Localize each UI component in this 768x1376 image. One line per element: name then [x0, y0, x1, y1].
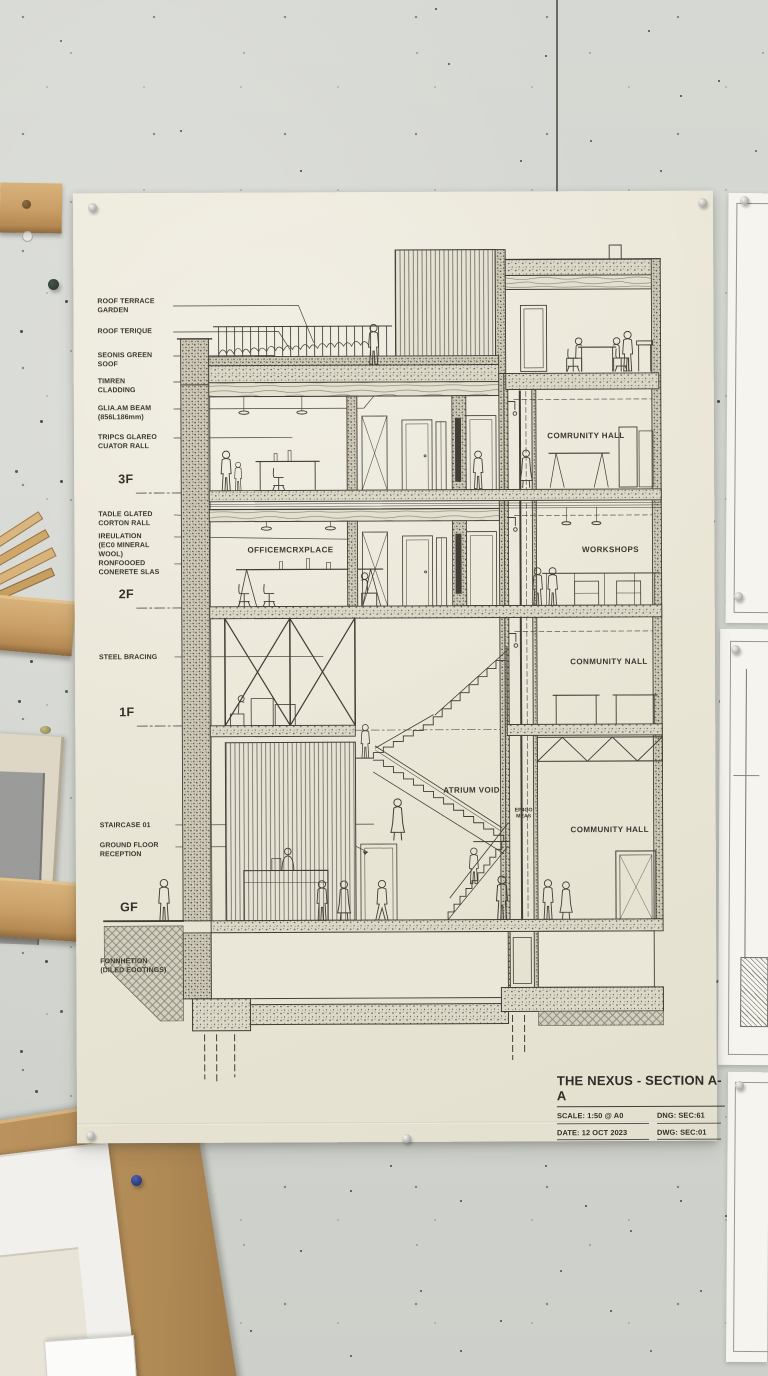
poster-pin-bottom-middle [402, 1134, 411, 1143]
annotation-reception: GROUND FLOOR RECEPTION [100, 841, 212, 860]
floor3-doors [362, 396, 496, 491]
pinned-sheet-mid-right [718, 629, 768, 1065]
annotation-roof-terrace-garden: ROOF TERRACE GARDEN [97, 297, 209, 316]
annotation-concrete-slab: RONFOOOED CONERETE SLAS [99, 559, 211, 578]
floor1-left-slab [210, 725, 355, 737]
annotation-staircase: STAIRCASE 01 [100, 821, 212, 831]
floor-label-gf: GF [120, 900, 138, 914]
blue-push-pin [131, 1175, 142, 1186]
poster-pin-top-left [88, 203, 97, 212]
room-label-community-hall-gf: COMMUNITY HALL [550, 825, 670, 835]
room-label-atrium-void: ATRIUM VOID [412, 785, 532, 795]
gf-right-hall [616, 851, 656, 919]
top-right-room [505, 305, 658, 390]
annotation-timber-cladding: TIMREN CLADDING [98, 377, 210, 396]
floor2-slab [209, 489, 661, 522]
room-label-workshops: WORKSHOPS [550, 545, 670, 555]
room-label-office: OFFICEMCRXPLACE [230, 545, 350, 555]
sheet-pin [734, 592, 743, 601]
pinned-sheet-bottom-right [726, 1072, 768, 1362]
architectural-section-poster: ROOF TERRACE GARDEN ROOF TERIQUE SEONIS … [73, 191, 717, 1144]
atrium-staircase [355, 647, 508, 921]
studio-wall-photo: ROOF TERRACE GARDEN ROOF TERIQUE SEONIS … [0, 0, 768, 1376]
annotation-foundation: FONNHETION (DILED EOOTINGS) [100, 957, 212, 976]
floor-label-2f: 2F [119, 587, 134, 601]
sheet-pin [731, 645, 740, 654]
wood-shelf-upper [0, 595, 76, 657]
white-frame-corner [44, 1335, 138, 1376]
floor1-right-hall [507, 631, 663, 762]
room-label-community-hall-top: COMRUNITY HALL [526, 431, 646, 441]
services-shaft [499, 373, 539, 989]
annotation-glulam-beam: GLIA.AM BEAM (856L186mm) [98, 404, 210, 423]
annotation-roof-terique: ROOF TERIQUE [98, 327, 210, 337]
pinned-sheet-top-right [725, 193, 768, 623]
wood-shelf-lower [0, 877, 82, 942]
annotation-curtain-wall-upper: TRIPCS GLAREO CUATOR RALL [98, 433, 210, 452]
floor2-doors [362, 521, 496, 607]
annotation-insulation: IREULATION (EC0 MINERAL WOOL) [98, 532, 210, 560]
annotation-curtain-wall-lower: TADLE GLATED CORTON RALL [98, 510, 210, 529]
poster-pin-bottom-left [86, 1131, 95, 1140]
yellow-push-pin [40, 726, 51, 734]
clear-push-pin [22, 231, 33, 242]
gf-reception [225, 742, 356, 921]
date-field: DATE: 12 OCT 2023 [557, 1127, 649, 1140]
sheet-pin [735, 1081, 744, 1090]
floor2-office [236, 521, 382, 607]
floor-label-3f: 3F [118, 472, 133, 486]
title-block: THE NEXUS - SECTION A-A SCALE: 1:50 @ A0… [557, 1073, 725, 1141]
floor1-slab [210, 605, 662, 619]
poster-pin-top-right [698, 198, 707, 207]
steel-bracing [225, 618, 355, 726]
detail-hatch-box [740, 957, 768, 1027]
dwg-field: DWG: SEC:01 [657, 1127, 721, 1140]
ground-foundation [104, 919, 664, 1083]
screw-head [22, 200, 31, 209]
hanging-wire [556, 0, 558, 194]
wood-wall-bracket [0, 182, 62, 233]
black-push-pin [206, 1216, 216, 1226]
annotation-green-roof: SEONIS GREEN SOOF [98, 351, 210, 370]
sheet-pin [740, 196, 749, 205]
floor-label-1f: 1F [119, 705, 134, 719]
room-label-community-hall-1f: CONMUNITY NALL [549, 657, 669, 667]
room-label-shaft: EP4GO MEAS [507, 807, 541, 819]
drawing-title: THE NEXUS - SECTION A-A [557, 1073, 725, 1108]
dark-push-pin [48, 279, 59, 290]
annotation-steel-bracing: STEEL BRACING [99, 653, 211, 663]
